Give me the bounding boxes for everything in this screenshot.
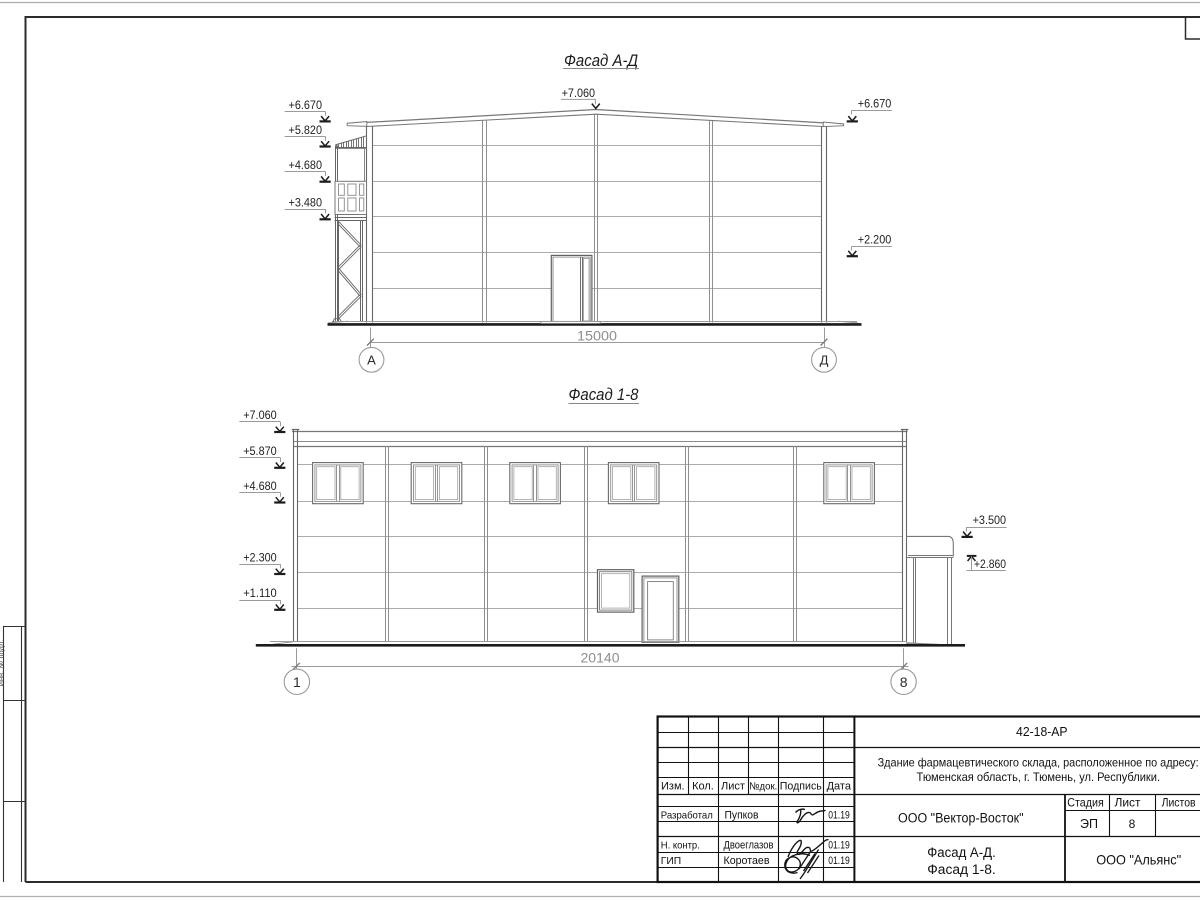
svg-text:01.19: 01.19 xyxy=(828,855,850,867)
svg-text:01.19: 01.19 xyxy=(828,809,850,821)
svg-text:Подпись: Подпись xyxy=(780,780,822,792)
svg-text:+2.300: +2.300 xyxy=(243,550,277,564)
svg-text:20140: 20140 xyxy=(581,650,620,665)
svg-text:ГИП: ГИП xyxy=(661,856,681,867)
svg-text:Дата: Дата xyxy=(827,780,852,792)
svg-text:+7.060: +7.060 xyxy=(243,408,277,422)
svg-text:ЭП: ЭП xyxy=(1080,817,1098,831)
svg-text:+6.670: +6.670 xyxy=(858,96,892,110)
svg-text:1: 1 xyxy=(293,674,301,690)
svg-text:Листов: Листов xyxy=(1162,795,1196,809)
svg-text:Кол.: Кол. xyxy=(692,780,714,792)
svg-text:+2.860: +2.860 xyxy=(974,557,1006,571)
svg-text:Н. контр.: Н. контр. xyxy=(661,840,700,851)
svg-text:+5.820: +5.820 xyxy=(289,123,323,137)
svg-text:+3.500: +3.500 xyxy=(973,513,1007,527)
svg-text:01.19: 01.19 xyxy=(828,839,850,851)
svg-text:Инв. № подл.: Инв. № подл. xyxy=(0,640,6,687)
svg-text:Пупков: Пупков xyxy=(725,809,759,821)
svg-text:Фасад 1-8: Фасад 1-8 xyxy=(569,385,639,404)
svg-text:Тюменская область, г. Тюмень,: Тюменская область, г. Тюмень, ул. Респуб… xyxy=(917,770,1161,784)
svg-text:Д: Д xyxy=(820,352,829,367)
svg-text:42-18-АР: 42-18-АР xyxy=(1016,724,1068,739)
svg-text:8: 8 xyxy=(900,674,908,690)
svg-text:+6.670: +6.670 xyxy=(289,98,323,112)
svg-text:+2.200: +2.200 xyxy=(858,232,892,246)
svg-text:ООО "Вектор-Восток": ООО "Вектор-Восток" xyxy=(898,811,1024,826)
svg-text:+7.060: +7.060 xyxy=(562,86,596,100)
svg-text:Лист: Лист xyxy=(1114,795,1141,809)
svg-text:+1.110: +1.110 xyxy=(243,586,277,600)
svg-text:Изм.: Изм. xyxy=(661,780,685,792)
svg-text:+4.680: +4.680 xyxy=(289,158,323,172)
svg-text:Двоеглазов: Двоеглазов xyxy=(724,839,774,851)
svg-text:Лист: Лист xyxy=(721,780,745,792)
svg-text:Стадия: Стадия xyxy=(1067,795,1104,809)
svg-text:Фасад 1-8.: Фасад 1-8. xyxy=(927,862,996,877)
svg-text:Фасад А-Д: Фасад А-Д xyxy=(564,51,638,70)
svg-text:Коротаев: Коротаев xyxy=(724,855,770,867)
svg-text:Здание фармацевтического склад: Здание фармацевтического склада, располо… xyxy=(878,756,1199,770)
svg-text:8: 8 xyxy=(1129,817,1136,831)
svg-text:№док.: №док. xyxy=(749,780,777,792)
svg-text:ООО "Альянс": ООО "Альянс" xyxy=(1096,851,1181,867)
svg-text:Разработал: Разработал xyxy=(661,809,713,821)
svg-text:+5.870: +5.870 xyxy=(243,444,277,458)
svg-text:+4.680: +4.680 xyxy=(243,479,277,493)
svg-text:Фасад А-Д.: Фасад А-Д. xyxy=(927,845,996,860)
svg-text:15000: 15000 xyxy=(577,329,617,344)
svg-text:+3.480: +3.480 xyxy=(289,195,323,209)
svg-text:А: А xyxy=(367,352,376,367)
